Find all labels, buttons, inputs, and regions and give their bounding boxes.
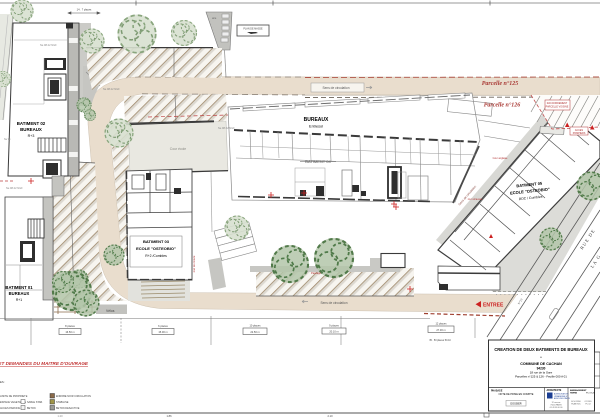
svg-text:20.10 m: 20.10 m (329, 330, 338, 334)
svg-text:PC 07.20: PC 07.20 (586, 392, 596, 394)
svg-text:BATIMENT 03: BATIMENT 03 (143, 239, 170, 244)
svg-text:mur rehaussé: mur rehaussé (468, 198, 483, 201)
svg-text:1.86: 1.86 (166, 414, 172, 418)
svg-text:ENROBE NOIR CIRCULATION: ENROBE NOIR CIRCULATION (56, 395, 91, 398)
svg-text:BUREAUX: BUREAUX (304, 117, 329, 123)
svg-text:DOSSIER: DOSSIER (510, 403, 521, 406)
svg-text:27.30 m: 27.30 m (436, 328, 445, 332)
svg-text:R+1: R+1 (16, 298, 22, 302)
svg-text:Ne 98.22 NGF: Ne 98.22 NGF (6, 186, 23, 190)
svg-text:BATIMENT 02: BATIMENT 02 (17, 121, 46, 126)
svg-text:Parcelle n°125: Parcelle n°125 (482, 80, 519, 87)
svg-text:LIMITE DE PROPRIETE: LIMITE DE PROPRIETE (0, 395, 28, 398)
svg-text:Ne 98.22 NGF: Ne 98.22 NGF (218, 126, 235, 130)
svg-text:ASSOCIES PARIS: ASSOCIES PARIS (554, 397, 570, 400)
svg-text:Sens de circulation: Sens de circulation (323, 86, 350, 90)
svg-text:Ne 98.22 NGF: Ne 98.22 NGF (40, 43, 57, 47)
svg-text:POMPIERS: POMPIERS (573, 132, 586, 135)
svg-text:STABILISE: STABILISE (56, 401, 69, 404)
svg-text:S ET DEMANDES DU MAITRE D'OUVR: S ET DEMANDES DU MAITRE D'OUVRAGE (0, 361, 89, 366)
svg-text:10 places: 10 places (249, 324, 261, 328)
svg-text:BETON DESACTIVE: BETON DESACTIVE (56, 407, 80, 410)
svg-text:ARCHITECTE: ARCHITECTE (547, 389, 562, 392)
svg-text:ACCES PARKING: ACCES PARKING (0, 407, 20, 410)
svg-text:Passage: Passage (311, 271, 322, 275)
svg-text:15.00 m: 15.00 m (158, 330, 167, 334)
svg-text:BETON: BETON (27, 407, 36, 410)
svg-text:9 places: 9 places (329, 324, 339, 328)
svg-text:TERRE: TERRE (570, 392, 578, 394)
svg-text:SABLE STAB.: SABLE STAB. (27, 401, 43, 404)
svg-text:PLAN RDC: PLAN RDC (571, 402, 581, 405)
svg-text:2.10: 2.10 (327, 414, 333, 418)
svg-text:mur de cloture: mur de cloture (192, 255, 196, 272)
svg-text:Parcelles n°125 & 126 - Feuill: Parcelles n°125 & 126 - Feuille 000 A 01 (515, 375, 567, 379)
svg-text:1.20: 1.20 (57, 414, 63, 418)
svg-text:6 places: 6 places (158, 324, 168, 328)
svg-text:BATIMENT 01: BATIMENT 01 (5, 285, 33, 290)
svg-text:Entresol: Entresol (309, 125, 323, 129)
svg-text:8 places: 8 places (65, 324, 75, 328)
svg-text:+: + (540, 356, 542, 360)
svg-text:CREATION DE DEUX BATIMENTS DE: CREATION DE DEUX BATIMENTS DE BUREAUX (494, 347, 588, 352)
svg-text:35 . 50 places 50.10: 35 . 50 places 50.10 (429, 339, 451, 342)
svg-text:Ne 98.22 NGF: Ne 98.22 NGF (103, 87, 120, 91)
svg-text:ECOLE "OSTEOBIO": ECOLE "OSTEOBIO" (136, 246, 176, 251)
svg-text:Parcelle n°126: Parcelle n°126 (484, 102, 521, 109)
svg-text:aire: aire (212, 16, 217, 20)
svg-text:NOTE DE PRISE EN COMPTE: NOTE DE PRISE EN COMPTE (499, 393, 534, 396)
svg-text:ES :: ES : (0, 380, 6, 384)
svg-text:R+2 /Combles: R+2 /Combles (145, 254, 167, 258)
svg-text:Sens de circulation: Sens de circulation (321, 301, 348, 305)
svg-text:PLAN DE MASSE: PLAN DE MASSE (243, 28, 263, 31)
svg-text:PARCELLE VOISINE: PARCELLE VOISINE (546, 106, 569, 109)
svg-text:14 . 7 places: 14 . 7 places (77, 8, 92, 12)
svg-text:PC 02: PC 02 (585, 403, 590, 405)
svg-text:ENTREE: ENTREE (483, 303, 504, 309)
svg-text:Cour école: Cour école (170, 147, 187, 151)
svg-text:16.50 m: 16.50 m (65, 330, 74, 334)
svg-text:Cour anglaise: Cour anglaise (493, 157, 508, 160)
svg-text:Ne 98: Ne 98 (4, 138, 11, 141)
svg-text:22.50 m: 22.50 m (250, 330, 259, 334)
svg-text:Vélos: Vélos (106, 309, 115, 313)
svg-text:12 places: 12 places (435, 322, 447, 326)
svg-text:BUREAUX: BUREAUX (20, 127, 42, 132)
svg-text:BUREAUX: BUREAUX (9, 291, 30, 296)
svg-text:R+3: R+3 (28, 134, 35, 138)
svg-text:01 43 55 00 00: 01 43 55 00 00 (550, 407, 563, 409)
